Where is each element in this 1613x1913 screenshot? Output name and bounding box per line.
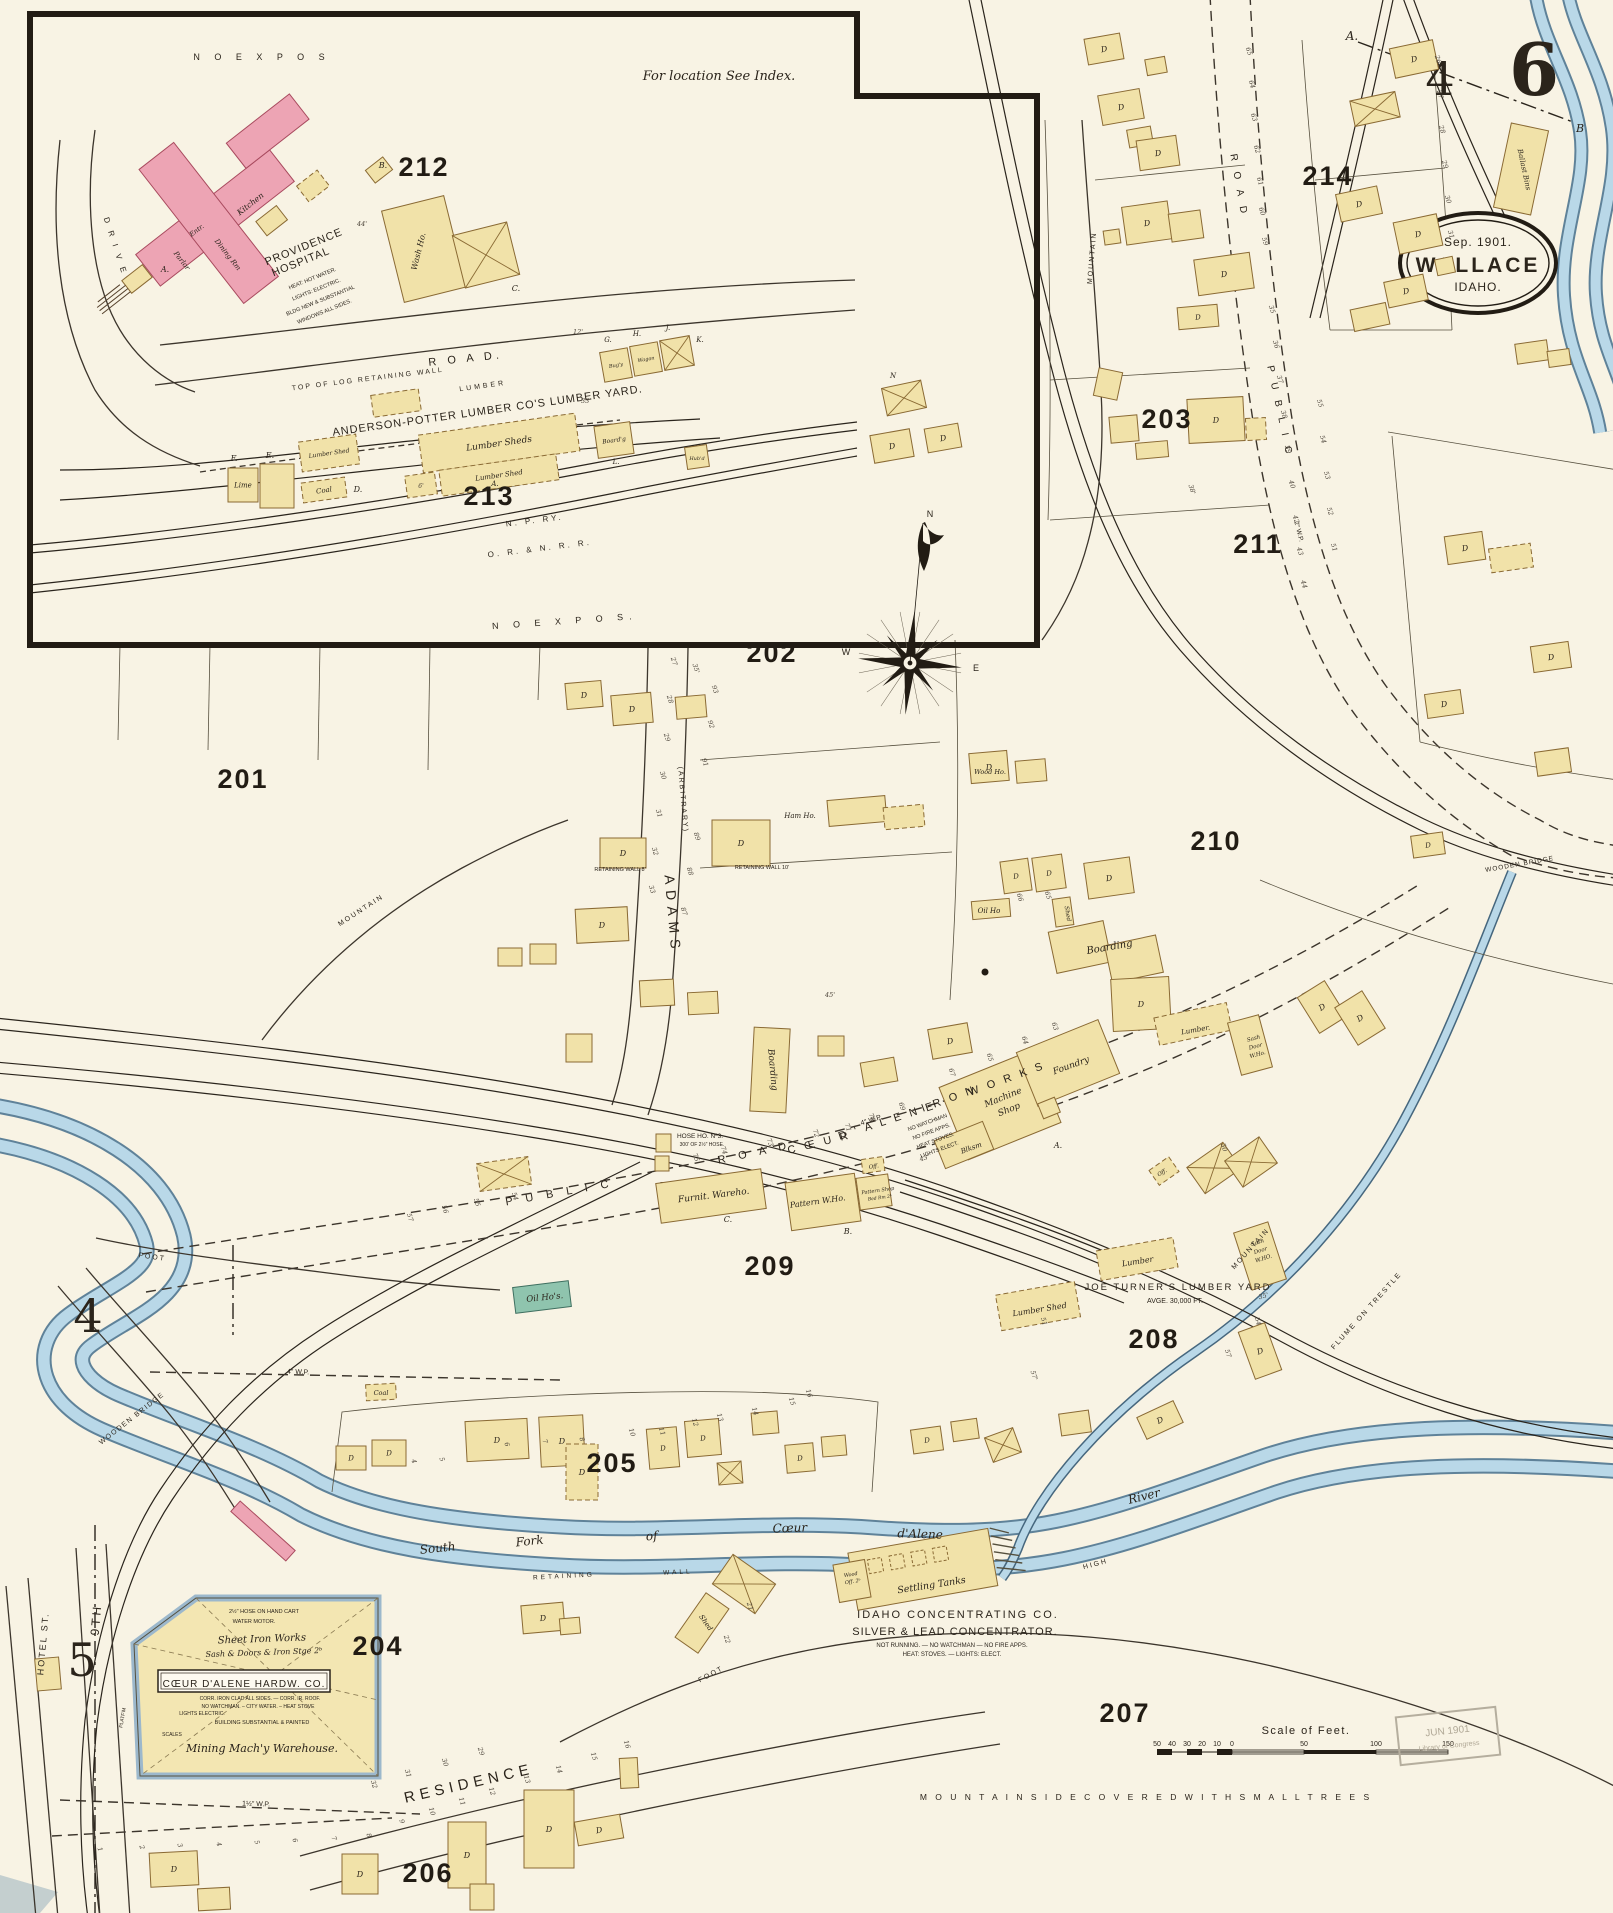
building: D	[785, 1443, 815, 1473]
building-label: D	[796, 1454, 804, 1463]
lot-number: 88	[685, 866, 695, 876]
lot-number: 14	[554, 1764, 564, 1774]
map-label: Oil Ho	[978, 907, 1001, 915]
building	[1489, 543, 1534, 573]
map-label: 33'	[581, 397, 591, 405]
building-footprint	[1245, 417, 1266, 440]
building	[1534, 748, 1571, 776]
lot-number: 66	[1015, 892, 1025, 902]
lot-number: 52	[1325, 506, 1335, 516]
map-label: A.	[1053, 1141, 1062, 1150]
building-footprint	[1093, 368, 1122, 400]
map-label: WALL	[663, 1568, 693, 1577]
map-label: Hub'd	[688, 456, 704, 462]
map-label: Cœur	[772, 1520, 808, 1535]
building: Bug'y	[600, 348, 633, 382]
map-label: Coal	[374, 1389, 389, 1397]
building: D	[149, 1851, 199, 1887]
building: D	[465, 1418, 529, 1461]
lot-number: 2	[137, 1843, 146, 1850]
building-footprint	[566, 1034, 592, 1062]
map-label: HEAT: STOVES. — LIGHTS: ELECT.	[903, 1652, 1002, 1658]
map-label: L.	[612, 458, 620, 466]
lot-number: 28	[1437, 123, 1447, 134]
block-number: 214	[1302, 161, 1353, 191]
map-label: BUILDING SUBSTANTIAL & PAINTED	[215, 1720, 310, 1726]
building	[559, 1617, 580, 1635]
building: D	[684, 1419, 721, 1458]
map-label: H.	[632, 330, 641, 338]
map-label: SCALES	[162, 1732, 182, 1738]
lot-number: 40	[1287, 478, 1297, 489]
lot-number: 91	[700, 757, 710, 767]
lot-number: 75	[691, 1152, 701, 1162]
building-footprint	[619, 1758, 639, 1789]
building	[639, 979, 674, 1007]
map-label: D R I V E	[102, 216, 129, 276]
providence-hospital-building	[46, 68, 374, 376]
building	[1015, 759, 1047, 784]
building: D	[600, 838, 646, 868]
lot-number: 30	[440, 1757, 450, 1767]
paper-corner-damage	[0, 1875, 58, 1913]
lot-number: 31	[654, 808, 664, 818]
scale-tick: 0	[1230, 1741, 1234, 1748]
building-footprint	[1109, 415, 1139, 443]
lot-number: 36	[1271, 339, 1281, 349]
building: Lime	[228, 468, 258, 502]
building	[818, 1036, 844, 1056]
building-footprint	[371, 389, 422, 417]
building-footprint	[1103, 229, 1121, 245]
map-label: AVGE. 30,000 FT.	[1147, 1298, 1203, 1305]
scale-tick: 50	[1153, 1741, 1161, 1748]
building	[1145, 56, 1167, 75]
building-footprint	[1350, 302, 1390, 331]
building	[860, 1057, 898, 1087]
building	[827, 796, 887, 827]
lot-number: 27	[669, 655, 680, 667]
map-label: Mining Mach'y Warehouse.	[185, 1742, 338, 1755]
lot-number: 64	[1247, 79, 1257, 89]
map-label: R O A D.	[428, 349, 504, 369]
lot-number: 3	[175, 1842, 184, 1848]
building-footprint	[197, 1887, 230, 1911]
building	[1103, 229, 1121, 245]
scale-tick: 50	[1300, 1741, 1308, 1748]
scale-tick: 100	[1370, 1741, 1382, 1748]
building	[660, 336, 695, 371]
lot-number: 16	[804, 1388, 814, 1398]
building-footprint	[656, 1134, 671, 1152]
map-label: NO WATCHMAN. – CITY WATER. – HEAT STOVE	[202, 1704, 316, 1710]
building-label: D	[385, 1450, 392, 1458]
building-footprint	[883, 804, 925, 829]
lot-number: 67	[947, 1067, 957, 1078]
lot-number: 53	[1322, 470, 1332, 480]
lot-number: 55	[472, 1197, 482, 1207]
map-label: 12'	[573, 328, 583, 336]
building	[821, 1435, 847, 1457]
lot-number: 10	[427, 1806, 437, 1816]
building-label: D	[579, 691, 588, 701]
building	[371, 389, 422, 417]
block-number: 202	[746, 638, 797, 668]
building-footprint	[559, 1617, 580, 1635]
lot-number: 6	[290, 1837, 299, 1843]
building-footprint	[1135, 441, 1168, 460]
building-footprint	[675, 695, 707, 720]
building	[951, 1418, 980, 1441]
building	[1245, 417, 1266, 440]
building: D	[969, 750, 1009, 783]
match-point-a: A.	[1345, 29, 1358, 43]
map-label: PLATF'M	[118, 1707, 127, 1728]
building	[1168, 210, 1204, 242]
building: Coal	[301, 477, 347, 503]
lot-number: 15	[787, 1396, 797, 1406]
lot-number: 51	[1039, 1316, 1049, 1326]
building-footprint	[1059, 1410, 1092, 1436]
lot-number: 59	[1260, 236, 1270, 246]
lot-number: 33	[647, 884, 657, 894]
building-label: D	[463, 1851, 471, 1860]
block-number: 203	[1141, 404, 1192, 434]
scale-tick: 40	[1168, 1741, 1176, 1748]
building	[1135, 441, 1168, 460]
building: D	[1194, 252, 1254, 295]
map-label: CORR. IRON CLAD ALL SIDES. — CORR. IR. R…	[200, 1696, 321, 1702]
building-label: D	[170, 1865, 178, 1874]
building-footprint	[1435, 256, 1456, 275]
map-label: NOT RUNNING. — NO WATCHMAN — NO FIRE APP…	[876, 1643, 1028, 1649]
lot-number: 9	[397, 1818, 406, 1824]
lot-number: 30	[658, 770, 668, 780]
lot-number: 1	[95, 1846, 104, 1852]
map-label: (ARBITRARY)	[676, 766, 689, 833]
map-label: B.	[378, 161, 387, 170]
building-footprint	[655, 1156, 669, 1171]
map-city: WALLACE	[1416, 254, 1541, 277]
scale-seg	[1217, 1749, 1232, 1755]
building: D	[1335, 991, 1385, 1045]
building-label: D	[659, 1444, 667, 1453]
building	[1225, 1137, 1278, 1187]
lot-number: 28	[665, 693, 675, 704]
lot-number: 62	[1252, 144, 1262, 154]
building	[197, 1887, 230, 1911]
building: D	[712, 820, 770, 866]
scale-title: Scale of Feet.	[1262, 1725, 1351, 1737]
building	[619, 1758, 639, 1789]
map-label: E.	[265, 451, 274, 460]
building: D	[575, 907, 629, 944]
lot-number: 44	[1299, 578, 1309, 589]
building	[382, 196, 467, 303]
lot-number: 92	[706, 719, 716, 729]
map-label: SILVER & LEAD CONCENTRATOR.	[852, 1626, 1057, 1638]
building: D	[870, 429, 914, 464]
building: D	[1411, 832, 1446, 858]
building	[470, 1884, 494, 1910]
lot-number: 89	[692, 831, 702, 841]
building	[1093, 368, 1122, 400]
block-number: 212	[398, 152, 449, 182]
map-label: K.	[695, 336, 703, 344]
building: D	[1122, 201, 1173, 245]
map-label: 300' OF 2½" HOSE.	[680, 1141, 725, 1148]
lot-number: 11	[457, 1796, 467, 1806]
building-label: D	[493, 1436, 501, 1445]
lot-number: 57	[1223, 1348, 1233, 1359]
building: D	[1238, 1323, 1281, 1380]
building: D	[1098, 89, 1145, 126]
building-footprint	[951, 1418, 980, 1441]
building: D	[521, 1602, 565, 1634]
lot-number: 56	[440, 1204, 450, 1214]
building: D	[1384, 274, 1429, 308]
lot-number: 61	[1255, 176, 1265, 186]
building-label: D	[627, 705, 636, 715]
building	[452, 222, 519, 288]
building-footprint	[1168, 210, 1204, 242]
map-label: B.	[843, 1227, 852, 1236]
lot-number: 64	[1020, 1035, 1030, 1045]
lot-number: 65	[1244, 46, 1254, 56]
building	[1547, 349, 1571, 368]
building-footprint	[260, 464, 294, 508]
scale-tick: 20	[1198, 1741, 1206, 1748]
building: D	[524, 1790, 574, 1868]
building	[260, 464, 294, 508]
lot-number: 15	[589, 1751, 599, 1761]
map-label: TOP OF LOG RETAINING WALL	[292, 367, 445, 393]
building	[297, 170, 330, 202]
map-label: C.	[724, 1215, 732, 1224]
map-label: FOOT	[698, 1665, 726, 1684]
block-number: 206	[402, 1858, 453, 1888]
lot-number: 12	[487, 1786, 497, 1796]
building-footprint	[1515, 340, 1549, 364]
building-footprint	[382, 196, 467, 303]
scale-tick: 10	[1213, 1741, 1221, 1748]
building-label: D	[1137, 1000, 1145, 1009]
lot-number: 13	[522, 1774, 532, 1784]
map-canvas: N W E Sep. 1901. WALLACE IDAHO. 6 4 4 5 …	[0, 0, 1613, 1913]
map-label: WATER MOTOR.	[233, 1619, 276, 1625]
building	[655, 1156, 669, 1171]
lot-number: 29	[662, 731, 672, 742]
map-label: M O U N T A I N S I D E C O V E R E D W …	[920, 1792, 1372, 1802]
building-footprint	[687, 991, 718, 1015]
lot-number: 4	[214, 1840, 223, 1847]
map-label: JOE TURNER'S LUMBER YARD	[1084, 1282, 1271, 1293]
lot-number: 10	[627, 1427, 637, 1437]
building-footprint	[1489, 543, 1534, 573]
building: D	[1137, 1401, 1183, 1440]
adjacent-sheet-5: 5	[67, 1633, 96, 1687]
building	[1059, 1410, 1092, 1436]
scale-bar: Scale of Feet. 5040302010050100150	[1153, 1725, 1454, 1755]
building-footprint	[470, 1884, 494, 1910]
building-label: D	[356, 1870, 364, 1879]
building: D	[1136, 135, 1180, 170]
building-footprint	[530, 944, 556, 964]
building: Lumber Shed	[298, 434, 360, 472]
building-label: D	[598, 921, 606, 930]
building-footprint	[297, 170, 330, 202]
map-label: R O A D	[1227, 153, 1249, 218]
map-label: RETAINING WALL 10'	[735, 865, 789, 871]
block-number: 211	[1233, 529, 1283, 559]
building: D	[1530, 641, 1571, 672]
lot-number: 55	[1315, 398, 1325, 408]
map-label: 6'	[418, 483, 424, 490]
building-footprint	[818, 1036, 844, 1056]
sanborn-map-sheet: N W E Sep. 1901. WALLACE IDAHO. 6 4 4 5 …	[0, 0, 1613, 1913]
map-label: FLUME ON TRESTLE	[1330, 1271, 1403, 1351]
building	[675, 695, 707, 720]
map-label: RETAINING	[533, 1571, 595, 1581]
map-label: HOSE HO. Nº3.	[677, 1133, 723, 1140]
map-label: G.	[604, 336, 612, 344]
lot-number: 7	[329, 1835, 338, 1842]
map-label: RESIDENCE	[403, 1760, 536, 1806]
map-label: 2½" HOSE ON HAND CART	[229, 1608, 300, 1615]
index-note: For location See Index.	[642, 69, 796, 84]
building: D	[1032, 854, 1066, 892]
building: D	[1187, 397, 1245, 444]
match-point-b: B	[1575, 122, 1584, 135]
building: D	[910, 1426, 943, 1454]
map-label: N O E X P O S.	[492, 611, 638, 631]
map-label: A.	[490, 480, 498, 488]
map-label: 1½" W.P.	[242, 1800, 270, 1809]
map-state: IDAHO.	[1454, 280, 1501, 294]
loc-stamp-date: JUN 1901	[1425, 1724, 1471, 1740]
building	[687, 991, 718, 1015]
building: D	[372, 1440, 406, 1466]
building	[656, 1134, 671, 1152]
building-footprint	[860, 1057, 898, 1087]
map-label: N	[889, 372, 897, 380]
building-footprint	[639, 979, 674, 1007]
map-label: D.	[353, 485, 363, 494]
building: D	[928, 1023, 973, 1059]
north-arrow-ornament	[918, 522, 944, 571]
lot-number: 43	[1295, 545, 1305, 556]
lot-number: 63	[1050, 1021, 1060, 1031]
building-label: D	[699, 1434, 707, 1443]
lot-number: 35'	[691, 662, 702, 674]
building-label: D	[619, 849, 627, 858]
block-number: 210	[1190, 826, 1241, 856]
building-label: D	[347, 1455, 354, 1463]
map-label: Wood Ho.	[974, 768, 1006, 776]
scale-tick: 30	[1183, 1741, 1191, 1748]
map-label: 45'	[824, 991, 835, 999]
block-number: 213	[463, 481, 514, 511]
sheet-number: 6	[1509, 27, 1559, 112]
lot-number: 16	[622, 1739, 632, 1749]
loc-stamp: JUN 1901 Library of Congress	[1396, 1707, 1500, 1765]
building	[530, 944, 556, 964]
lot-number: 38'	[1187, 483, 1198, 495]
map-label: CŒUR D'ALENE HARDW. CO.	[163, 1679, 326, 1690]
lot-number: 5	[252, 1839, 261, 1845]
building: D	[1000, 858, 1032, 894]
building	[984, 1428, 1021, 1463]
map-label: IDAHO CONCENTRATING CO.	[857, 1609, 1059, 1621]
building-footprint	[827, 796, 887, 827]
building	[883, 804, 925, 829]
building: D	[611, 692, 653, 725]
building-label: D	[737, 839, 745, 848]
building	[1109, 415, 1139, 443]
building-footprint	[1534, 748, 1571, 776]
building: D	[448, 1822, 486, 1888]
compass-e: E	[973, 663, 979, 673]
lot-number: 29	[476, 1745, 486, 1756]
map-label: C.	[512, 284, 520, 293]
labels-layer: 2012022032042052062072082092102112122132…	[35, 46, 1554, 1888]
building	[717, 1461, 743, 1485]
lot-number: 65	[1043, 890, 1053, 900]
building: D	[1336, 186, 1383, 222]
hydrant-dot-2	[982, 969, 989, 976]
building: D	[1177, 304, 1219, 329]
building	[476, 1157, 531, 1192]
building-label: D	[545, 1825, 553, 1834]
compass-w: W	[842, 647, 851, 657]
lot-number: 93	[710, 684, 720, 694]
map-label: Ham Ho.	[783, 812, 816, 820]
lot-number: 32	[650, 846, 660, 856]
building-footprint	[1145, 56, 1167, 75]
lot-number: 57'	[1029, 1369, 1040, 1381]
map-label: LIGHTS ELECTRIC.	[179, 1711, 225, 1717]
building: D	[342, 1854, 378, 1894]
lot-number: 65	[985, 1052, 995, 1062]
building	[1515, 340, 1549, 364]
building	[498, 948, 522, 966]
lot-number: 35	[1267, 304, 1277, 314]
building-footprint	[1015, 759, 1047, 784]
building: Board'g	[594, 422, 634, 459]
compass-n: N	[927, 509, 934, 519]
building-label: Lime	[233, 482, 252, 490]
parcel-lines	[118, 40, 1613, 1492]
lot-number: 54	[1318, 434, 1328, 444]
lot-number: 57	[405, 1212, 415, 1223]
lot-number: 4	[409, 1457, 418, 1464]
lot-number: 31	[403, 1768, 413, 1778]
block-number: 209	[744, 1251, 795, 1281]
building-label: D	[1212, 416, 1220, 425]
map-label: MOUNTAIN	[1087, 231, 1099, 284]
map-label: 44'	[356, 220, 367, 228]
lot-number: 5	[437, 1456, 446, 1462]
block-number: 208	[1128, 1324, 1179, 1354]
scale-seg	[1187, 1749, 1202, 1755]
map-label: 9TH	[88, 1603, 105, 1636]
lot-number: 51	[1329, 542, 1339, 552]
building: D	[336, 1446, 366, 1470]
building-footprint	[498, 948, 522, 966]
map-label: RETAINING WALL 8'	[594, 867, 645, 873]
scale-seg	[1157, 1749, 1172, 1755]
map-label: N. P. RY.	[505, 513, 564, 529]
